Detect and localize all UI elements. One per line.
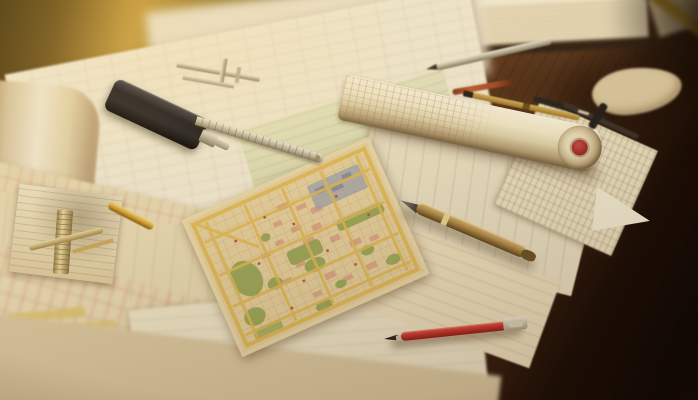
ruler-notch bbox=[315, 155, 321, 161]
brass-pencil-joint bbox=[522, 103, 530, 110]
drafting-desk-photo bbox=[0, 0, 698, 400]
compass-divider bbox=[532, 98, 647, 148]
fountain-pen-tail bbox=[520, 248, 538, 263]
caliper-slide-bar bbox=[182, 76, 234, 89]
